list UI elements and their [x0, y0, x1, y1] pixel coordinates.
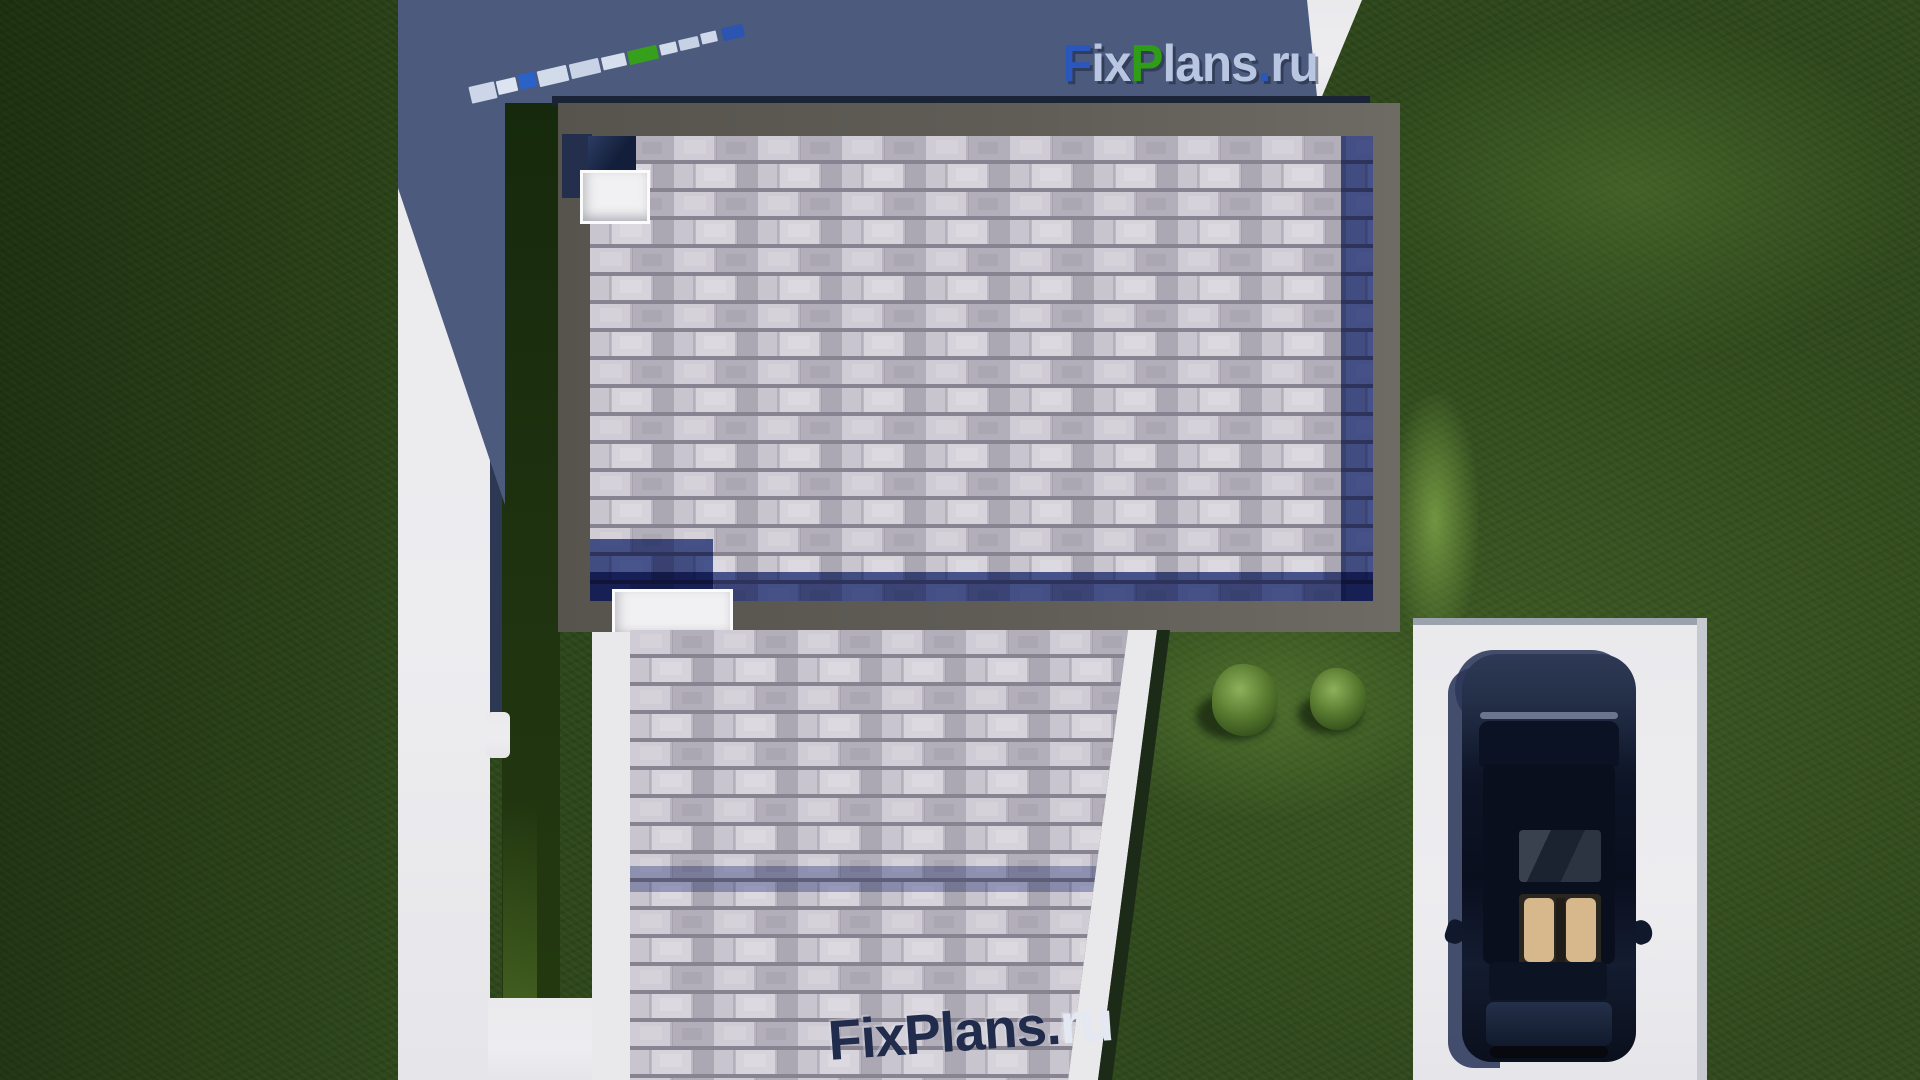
- car-rear-window: [1489, 962, 1607, 1000]
- driveway-right-edge: [1697, 618, 1707, 1080]
- car-seat-right: [1566, 898, 1596, 962]
- bush-1: [1212, 664, 1278, 736]
- car-center-console: [1556, 898, 1565, 962]
- car-windshield: [1479, 721, 1619, 767]
- logo-letter-p: P: [1131, 35, 1163, 93]
- watermark-ru: ru: [1058, 989, 1115, 1056]
- fixplans-logo-top: FixPlans.ru: [1062, 34, 1318, 94]
- bottom-left-paving: [488, 998, 596, 1080]
- aerial-render-scene: { "branding": { "site_name": "FixPlans.r…: [0, 0, 1920, 1080]
- chimney-1: [580, 170, 650, 224]
- upper-roof-shingles: [590, 136, 1373, 601]
- logo-letter-f: F: [1062, 35, 1091, 93]
- car-seat-left: [1524, 898, 1554, 962]
- grass-light-streak: [503, 755, 537, 1003]
- lower-roof-left-parapet: [592, 632, 632, 1080]
- car-rear-bumper: [1490, 1046, 1608, 1058]
- logo-dot: .: [1258, 35, 1271, 93]
- skylight-glass: [588, 136, 636, 174]
- path-white-bulge: [486, 712, 510, 758]
- lower-roof-shadow-band: [630, 866, 1128, 892]
- upper-roof-shadow-right-strip: [1341, 136, 1373, 601]
- car-trunk: [1486, 1002, 1612, 1046]
- logo-letters-lans: lans: [1163, 35, 1258, 93]
- logo-letters-ix: ix: [1091, 35, 1130, 93]
- car-sunroof-front: [1519, 830, 1601, 882]
- logo-letters-ru: ru: [1270, 35, 1318, 93]
- car-cowl-highlight: [1480, 712, 1618, 719]
- driveway-top-edge: [1413, 618, 1705, 625]
- bush-2: [1310, 668, 1366, 730]
